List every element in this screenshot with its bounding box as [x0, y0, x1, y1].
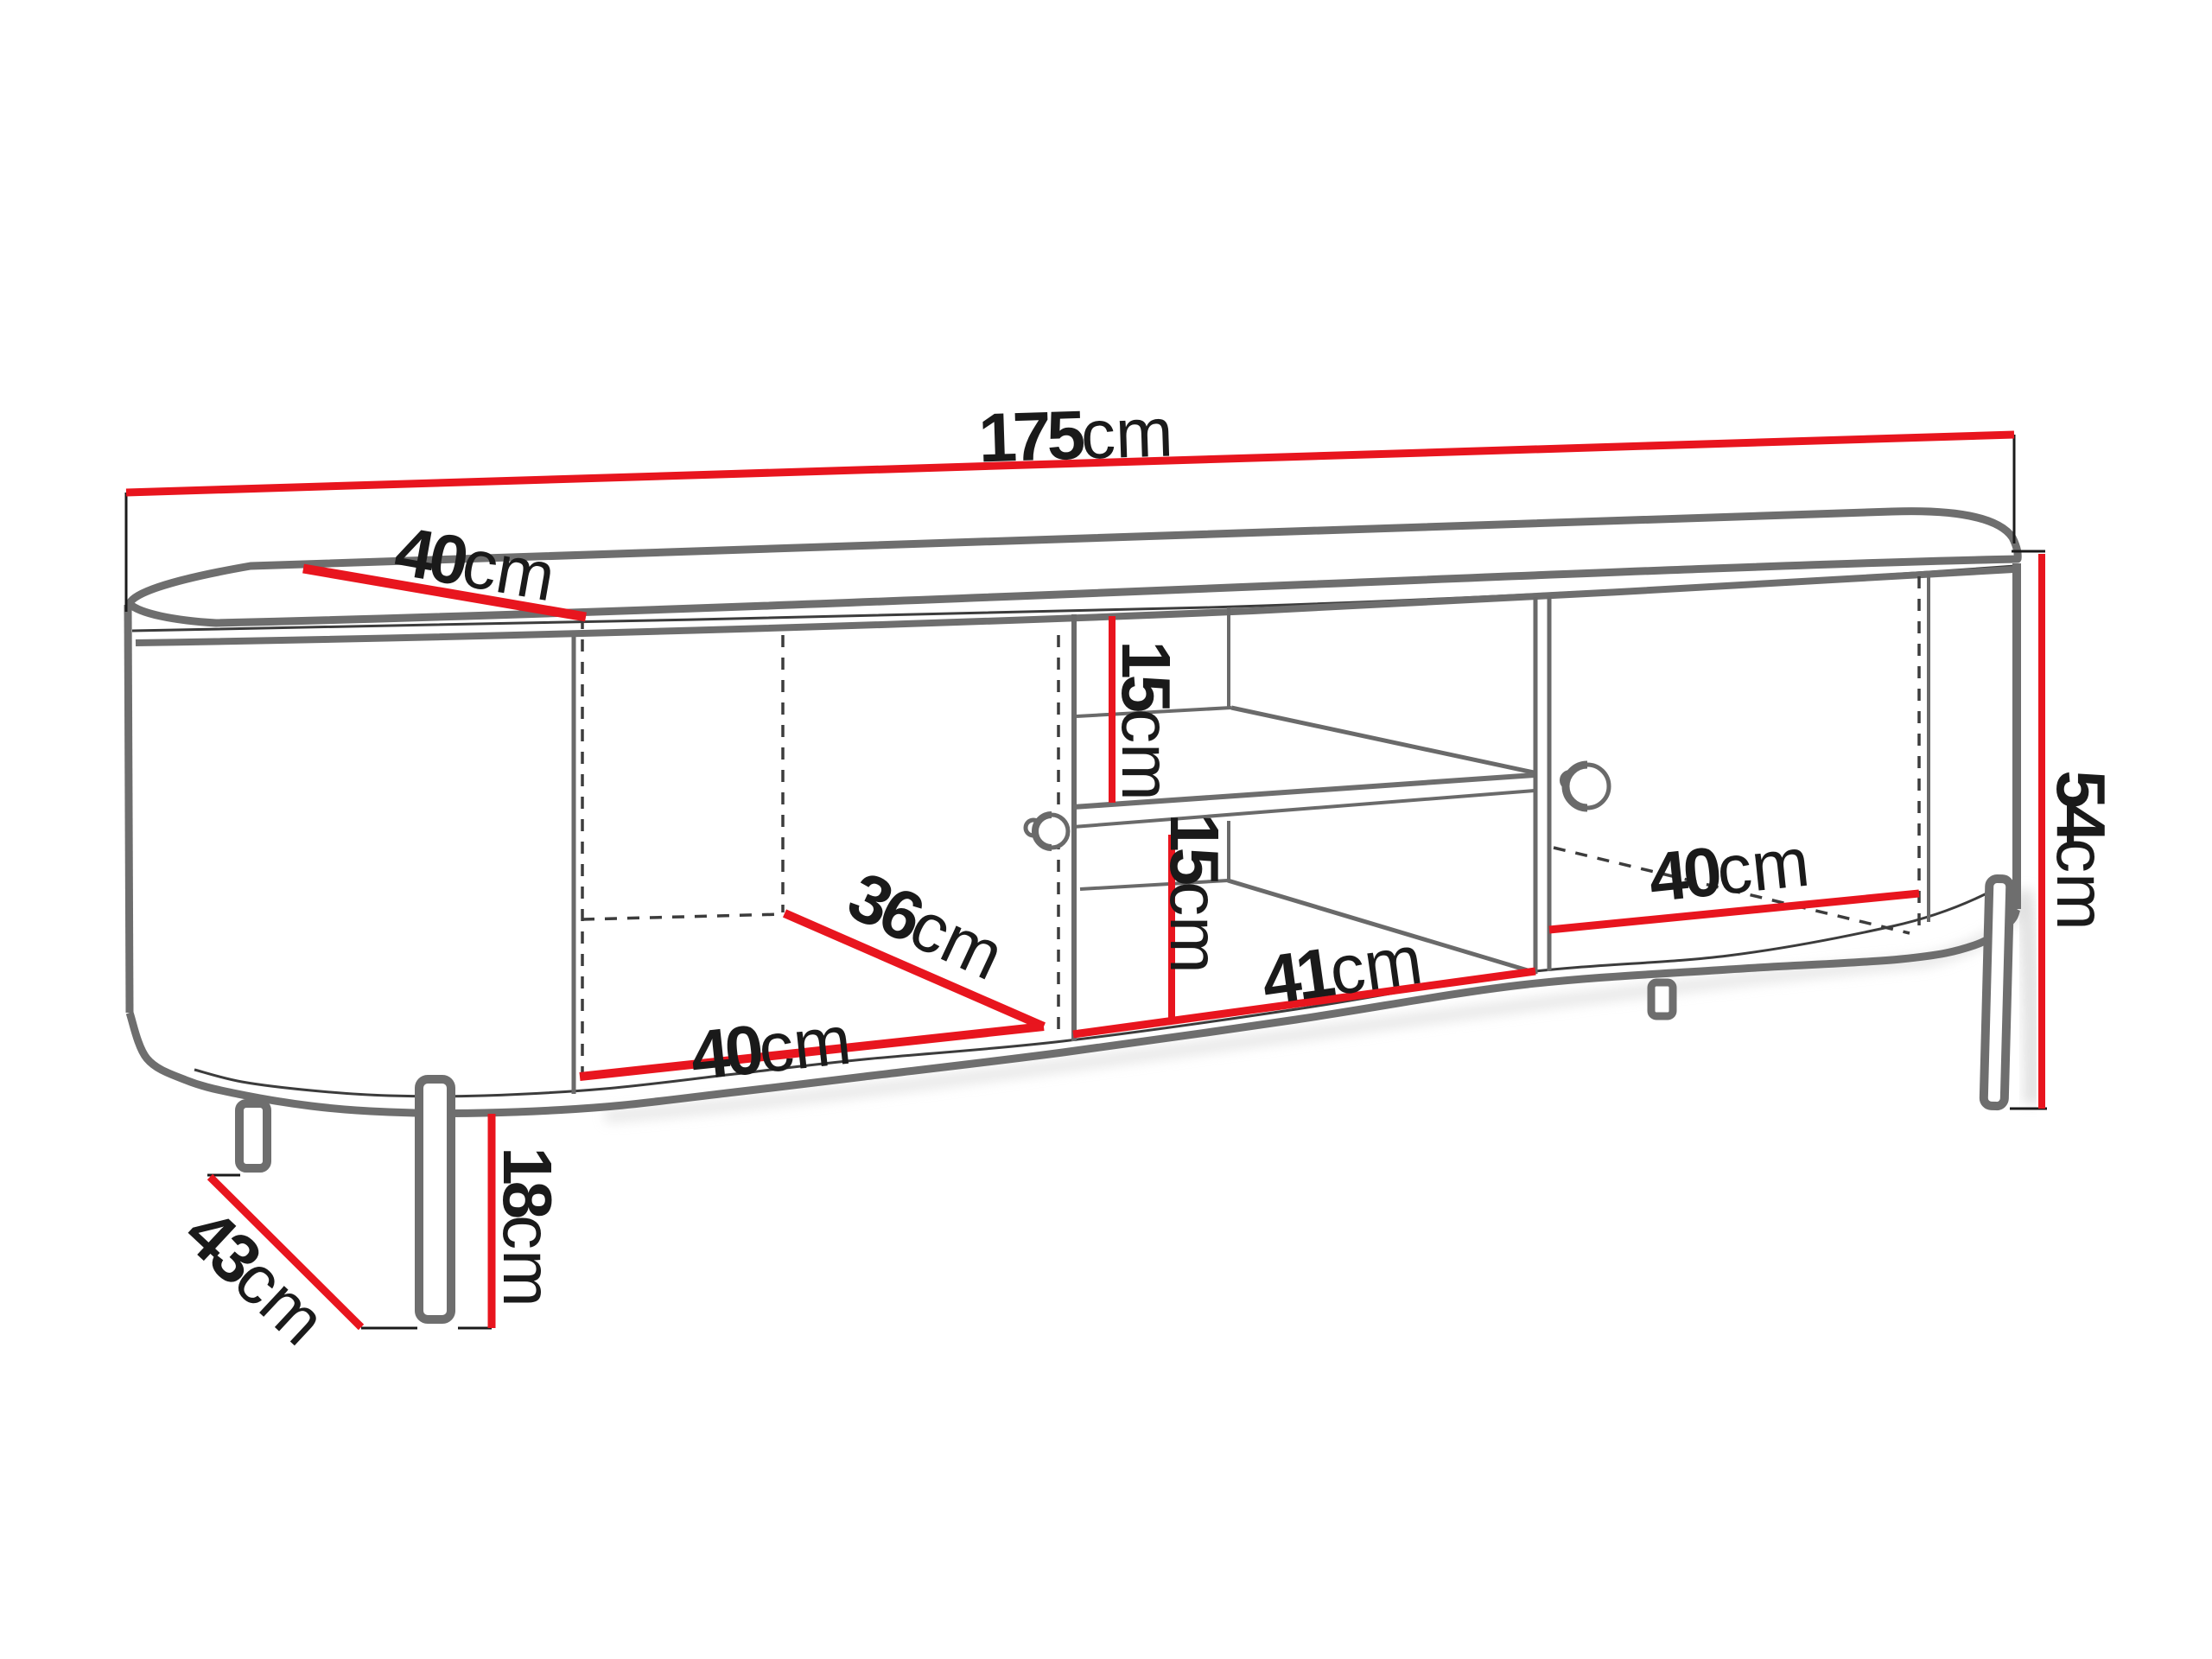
svg-text:15cm: 15cm: [1108, 640, 1185, 801]
svg-text:15cm: 15cm: [1156, 813, 1233, 974]
svg-text:175cm: 175cm: [977, 393, 1174, 476]
svg-text:18cm: 18cm: [489, 1147, 566, 1307]
svg-text:54cm: 54cm: [2043, 770, 2120, 931]
